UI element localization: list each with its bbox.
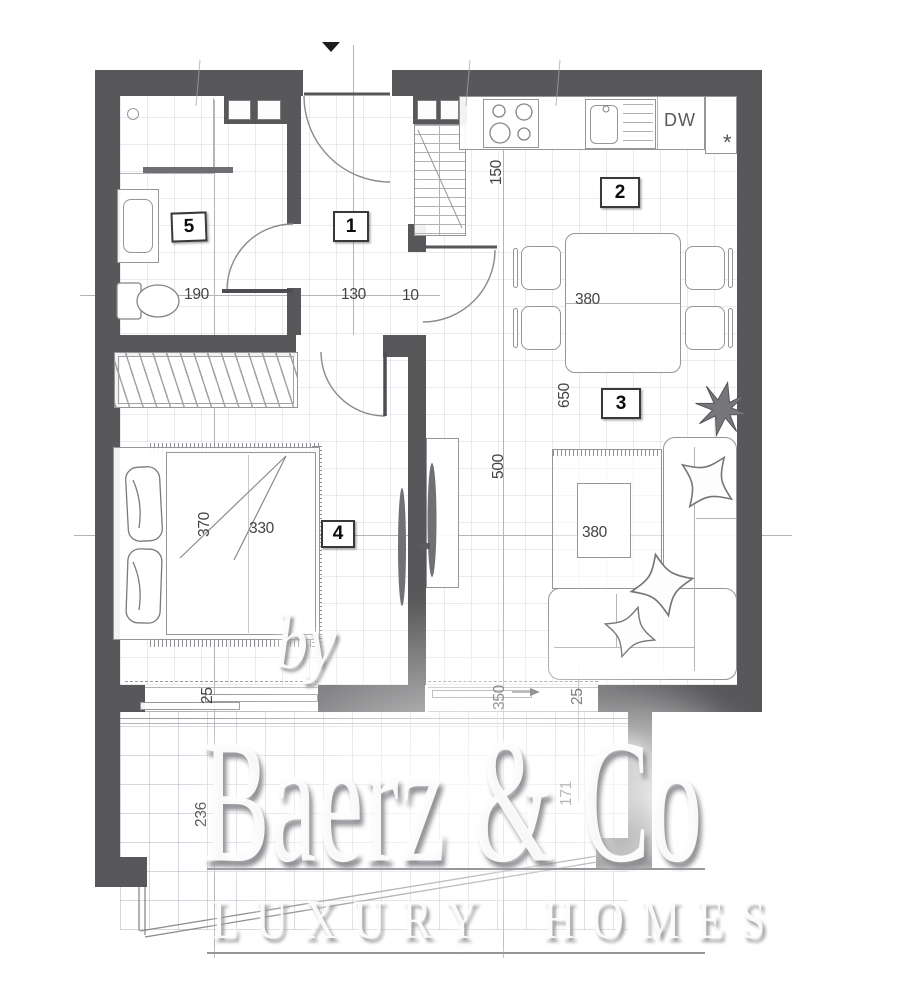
shower-drain-icon: [128, 109, 139, 120]
dishwasher-label: DW: [664, 110, 696, 131]
floor-plan: 270 190 130 10 150 380 650 500 370 330 3…: [0, 0, 912, 1000]
compass-rose-icon: [690, 377, 754, 441]
room-number-2: 2: [600, 177, 640, 208]
dimension-label-330: 330: [249, 520, 274, 538]
dimension-label-370: 370: [196, 501, 213, 537]
dimension-label-380-dining: 380: [575, 291, 600, 309]
watermark-tagline: LUXURY HOMES: [212, 888, 782, 952]
watermark-brand: Baerz & Co: [202, 700, 704, 904]
faucet-icon: [603, 106, 609, 112]
bed-pillows-icon: [125, 466, 163, 623]
dimension-label-380-rug: 380: [582, 524, 607, 542]
watermark-by: by: [276, 598, 336, 687]
room-number-1: 1: [333, 211, 369, 242]
room-number-5: 5: [170, 211, 207, 242]
toilet-icon: [117, 283, 179, 319]
kitchen-door-arc: [423, 250, 495, 322]
room-number-3: 3: [601, 388, 641, 419]
stove-burners-icon: [490, 104, 532, 143]
room-number-4: 4: [321, 520, 355, 548]
dimension-label-130: 130: [341, 286, 366, 304]
bathroom-door-arc: [227, 224, 293, 290]
tv-icon: [398, 463, 437, 606]
dimension-label-190: 190: [184, 286, 209, 304]
entrance-door-arc: [304, 96, 390, 182]
dimension-label-650: 650: [556, 372, 573, 408]
dimension-label-150: 150: [488, 149, 505, 185]
bedroom-door-arc: [321, 352, 385, 416]
appliance-star-marker: *: [723, 130, 731, 156]
entrance-arrow-icon: [322, 42, 340, 52]
closet-diagonal: [418, 130, 462, 228]
survey-ticks: [196, 60, 560, 106]
dimension-label-10: 10: [402, 287, 419, 305]
dimension-label-500: 500: [490, 443, 507, 479]
watermark-rule-bottom: [207, 952, 705, 954]
